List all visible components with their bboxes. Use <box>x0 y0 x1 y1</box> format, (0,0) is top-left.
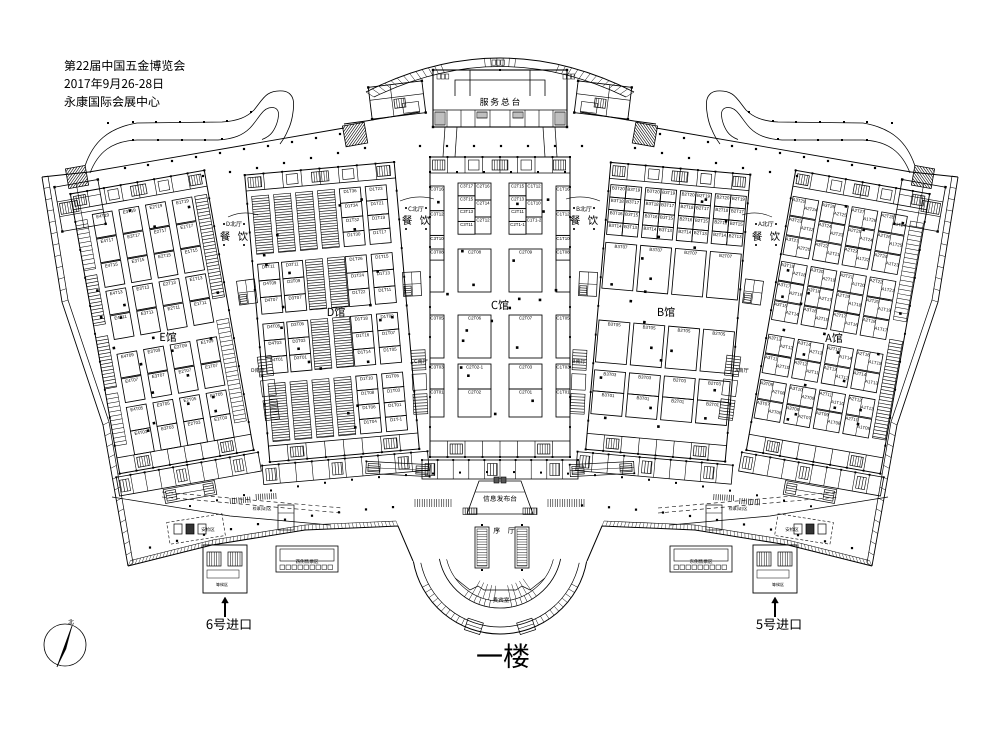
svg-text:C2T1-1: C2T1-1 <box>510 222 525 227</box>
svg-text:C2T14: C2T14 <box>476 201 490 206</box>
svg-text:C3T15: C3T15 <box>460 196 474 201</box>
svg-text:C3T13: C3T13 <box>460 209 474 214</box>
svg-text:C2T13: C2T13 <box>511 196 525 201</box>
svg-text:C3T12: C3T12 <box>430 211 444 216</box>
svg-text:C1T12: C1T12 <box>556 211 570 216</box>
svg-text:C3T17: C3T17 <box>460 184 474 189</box>
svg-text:C1T05: C1T05 <box>556 316 570 321</box>
svg-text:C1T16: C1T16 <box>556 187 570 192</box>
svg-text:C2T07: C2T07 <box>519 316 533 321</box>
svg-text:C1T10: C1T10 <box>556 236 570 241</box>
svg-text:C2T08: C2T08 <box>468 250 482 255</box>
svg-text:C2T12: C2T12 <box>476 218 490 223</box>
svg-text:C1T1-2: C1T1-2 <box>527 218 542 223</box>
svg-text:C2T03: C2T03 <box>519 365 533 370</box>
svg-text:C1T01: C1T01 <box>556 390 570 395</box>
svg-text:C1T08: C1T08 <box>556 250 570 255</box>
svg-text:C3T05: C3T05 <box>430 316 444 321</box>
svg-text:C3T08: C3T08 <box>430 250 444 255</box>
svg-text:C2T16: C2T16 <box>476 184 490 189</box>
svg-text:C2T01: C2T01 <box>519 390 533 395</box>
svg-text:C3T16: C3T16 <box>430 187 444 192</box>
svg-text:C2T11: C2T11 <box>511 209 524 214</box>
svg-text:C1T12: C1T12 <box>527 184 541 189</box>
svg-text:C2T09: C2T09 <box>519 250 533 255</box>
svg-text:C2T02: C2T02 <box>468 390 482 395</box>
svg-text:C3T11: C3T11 <box>460 222 473 227</box>
svg-text:C1T10: C1T10 <box>527 201 541 206</box>
svg-text:C3T01: C3T01 <box>430 390 444 395</box>
svg-text:C3T10: C3T10 <box>430 236 444 241</box>
svg-text:C2T06: C2T06 <box>468 316 482 321</box>
svg-text:C2T02-1: C2T02-1 <box>466 365 484 370</box>
svg-text:C2T15: C2T15 <box>511 184 525 189</box>
svg-text:C1T03: C1T03 <box>556 365 570 370</box>
svg-text:C3T03: C3T03 <box>430 365 444 370</box>
